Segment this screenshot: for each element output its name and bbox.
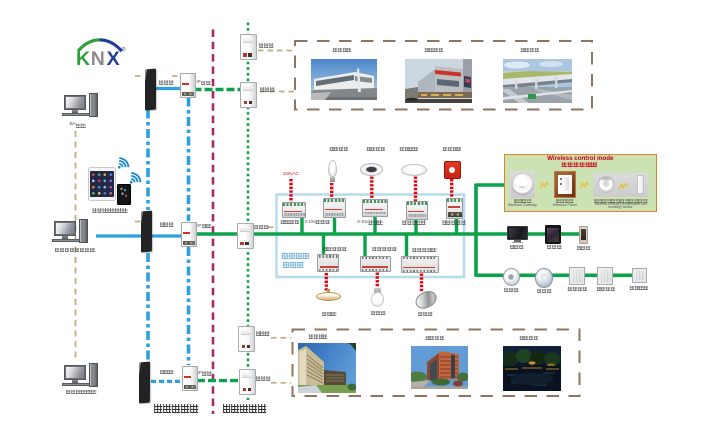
svg-text:K: K bbox=[76, 48, 90, 67]
svg-text:N: N bbox=[90, 48, 104, 67]
svg-text:X: X bbox=[106, 48, 119, 67]
svg-text:®: ® bbox=[121, 46, 125, 53]
